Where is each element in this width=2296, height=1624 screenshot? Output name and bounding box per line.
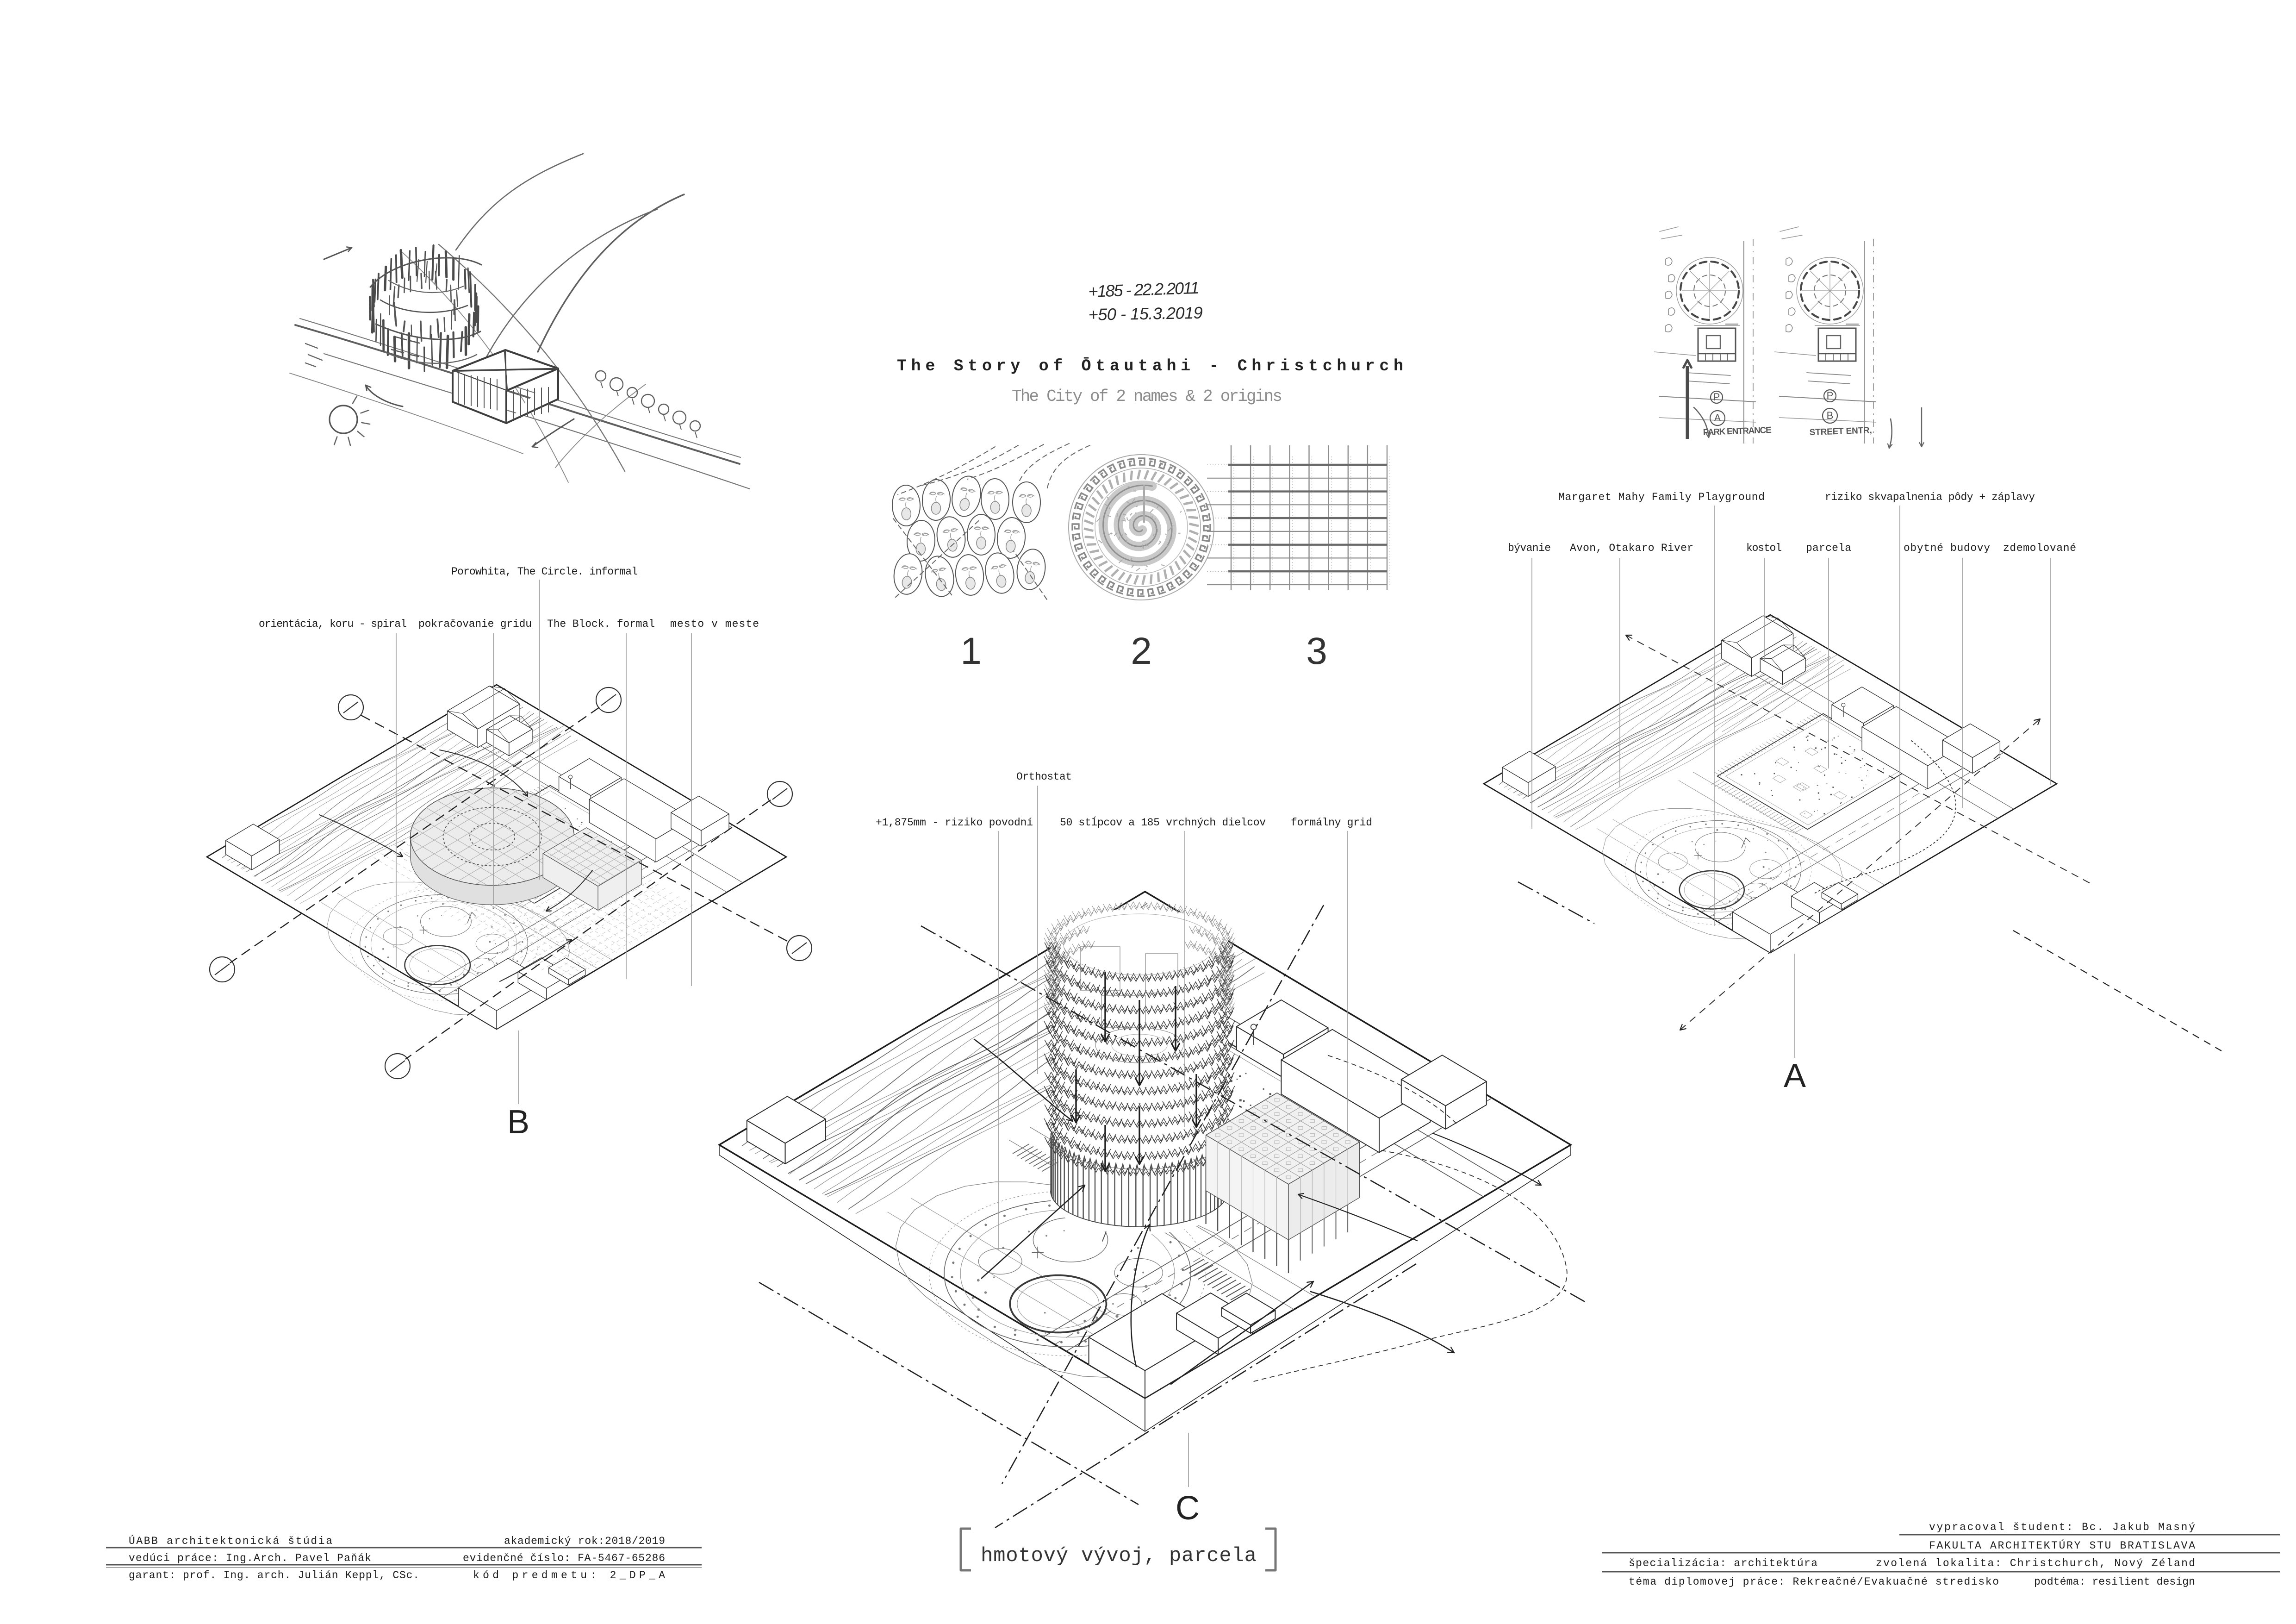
svg-text:zdemolované: zdemolované — [2003, 542, 2076, 554]
svg-text:2: 2 — [1131, 630, 1152, 672]
svg-text:ÚABB architektonická štúdia: ÚABB architektonická štúdia — [129, 1534, 332, 1547]
svg-text:3: 3 — [1306, 630, 1327, 672]
svg-text:1: 1 — [960, 630, 982, 672]
svg-text:B: B — [1827, 410, 1834, 421]
svg-text:bývanie: bývanie — [1508, 542, 1551, 554]
svg-text:podtéma: resilient design: podtéma: resilient design — [2034, 1576, 2195, 1588]
svg-text:A: A — [1714, 412, 1721, 424]
svg-text:FAKULTA ARCHITEKTÚRY STU BRATI: FAKULTA ARCHITEKTÚRY STU BRATISLAVA — [1929, 1539, 2195, 1552]
svg-text:The City of 2 names & 2 origin: The City of 2 names & 2 origins — [1012, 387, 1282, 406]
svg-text:mesto v meste: mesto v meste — [670, 618, 759, 630]
svg-text:P: P — [1713, 391, 1720, 403]
svg-text:téma diplomovej práce: Rekreač: téma diplomovej práce: Rekreačné/Evakuač… — [1629, 1576, 1999, 1588]
svg-text:evidenčné číslo: FA-5467-65286: evidenčné číslo: FA-5467-65286 — [463, 1552, 665, 1564]
svg-text:akademický rok:2018/2019: akademický rok:2018/2019 — [504, 1535, 665, 1547]
svg-text:zvolená lokalita: Christchurch: zvolená lokalita: Christchurch, Nový Zél… — [1876, 1557, 2195, 1569]
svg-text:hmotový vývoj, parcela: hmotový vývoj, parcela — [981, 1544, 1257, 1568]
svg-text:formálny grid: formálny grid — [1291, 817, 1372, 829]
svg-text:+50 - 15.3.2019: +50 - 15.3.2019 — [1088, 303, 1203, 324]
svg-text:Orthostat: Orthostat — [1016, 771, 1072, 783]
svg-text:50 stĺpcov a 185 vrchných diel: 50 stĺpcov a 185 vrchných dielcov — [1060, 816, 1266, 829]
svg-text:obytné budovy: obytné budovy — [1904, 542, 1990, 554]
svg-text:C: C — [1176, 1490, 1200, 1527]
svg-text:A: A — [1784, 1057, 1806, 1094]
svg-text:garant: prof. Ing. arch. Juliá: garant: prof. Ing. arch. Julián Keppl, C… — [129, 1569, 419, 1581]
svg-text:pokračovanie gridu: pokračovanie gridu — [418, 618, 532, 630]
svg-text:vypracoval študent: Bc. Jakub: vypracoval študent: Bc. Jakub Masný — [1929, 1521, 2195, 1533]
svg-text:+185 - 22.2.2011: +185 - 22.2.2011 — [1088, 278, 1200, 301]
svg-text:parcela: parcela — [1806, 542, 1851, 554]
svg-text:P: P — [1827, 390, 1834, 401]
svg-text:orientácia, koru - spiral: orientácia, koru - spiral — [259, 618, 407, 630]
svg-text:Avon, Otakaro River: Avon, Otakaro River — [1570, 542, 1693, 554]
svg-text:B: B — [507, 1104, 529, 1141]
svg-text:Porowhita, The Circle. informa: Porowhita, The Circle. informal — [451, 566, 638, 578]
svg-text:vedúci práce: Ing.Arch. Pavel: vedúci práce: Ing.Arch. Pavel Paňák — [129, 1552, 371, 1564]
svg-text:The Block. formal: The Block. formal — [547, 618, 655, 630]
svg-text:špecializácia: architektúra: špecializácia: architektúra — [1629, 1557, 1817, 1569]
svg-text:kostol: kostol — [1746, 542, 1782, 554]
svg-text:+1,875mm - riziko povodní: +1,875mm - riziko povodní — [876, 817, 1033, 829]
svg-text:riziko skvapalnenia pôdy + záp: riziko skvapalnenia pôdy + záplavy — [1825, 491, 2035, 503]
svg-text:Margaret Mahy Family Playgroun: Margaret Mahy Family Playground — [1558, 491, 1765, 503]
